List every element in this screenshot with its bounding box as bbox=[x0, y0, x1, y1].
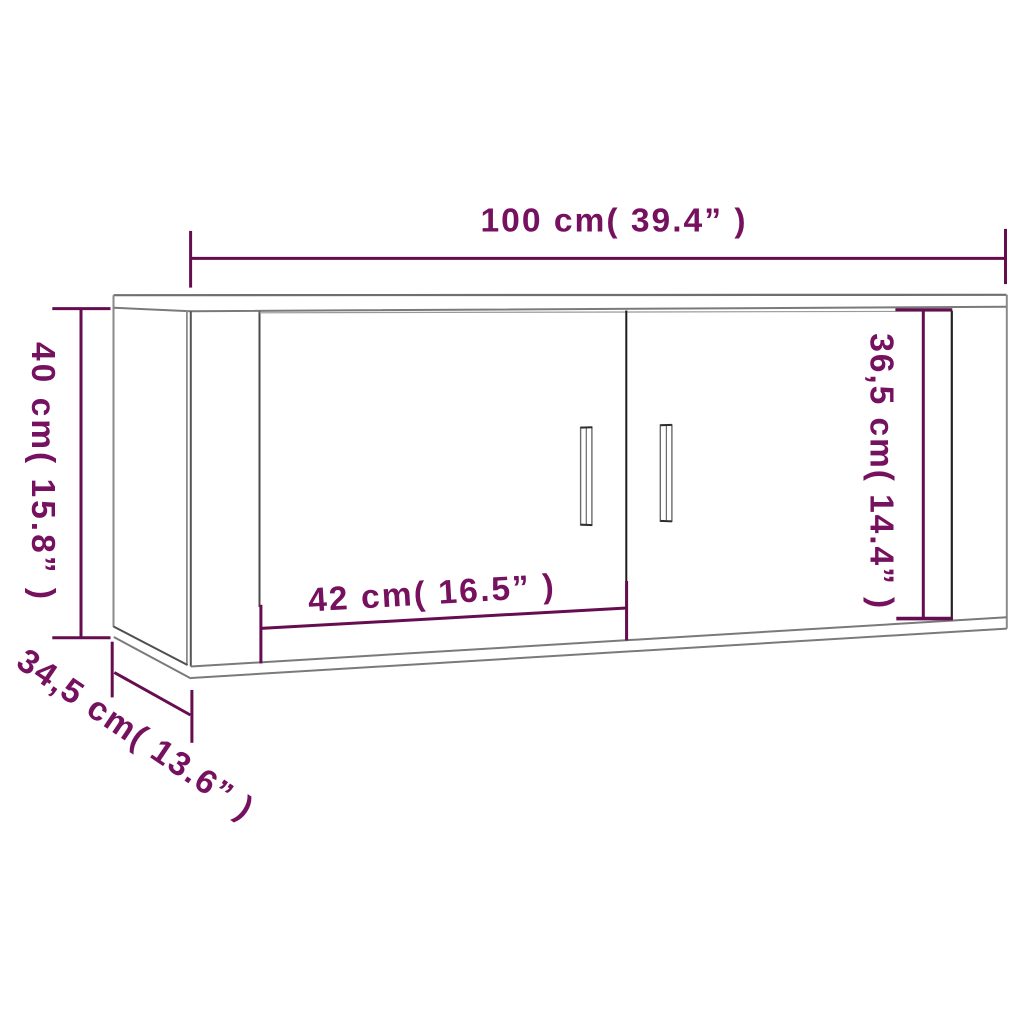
svg-text:36,5 cm( 14.4” ): 36,5 cm( 14.4” ) bbox=[863, 333, 900, 608]
svg-text:40 cm( 15.8” ): 40 cm( 15.8” ) bbox=[24, 342, 61, 599]
